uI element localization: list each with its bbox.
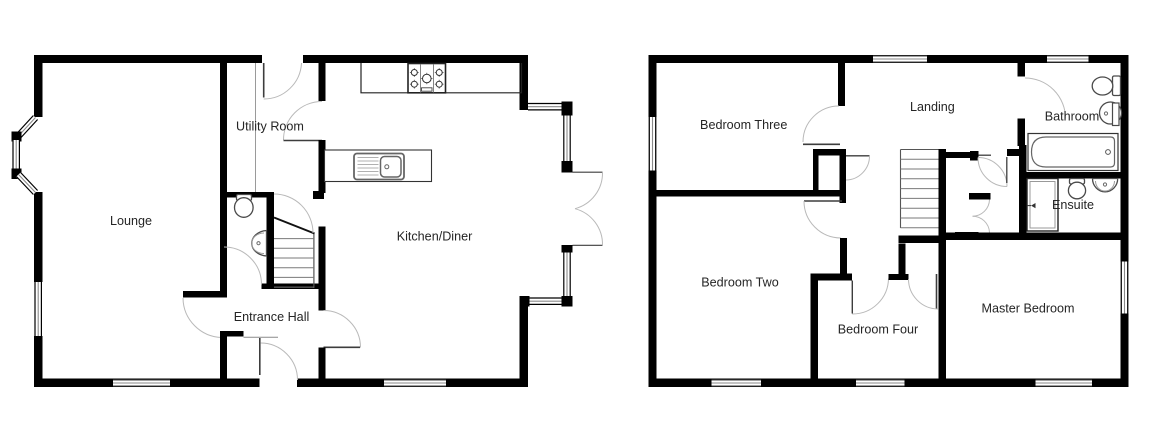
svg-text:Bathroom: Bathroom (1045, 110, 1100, 124)
svg-text:Bedroom Two: Bedroom Two (701, 276, 778, 290)
svg-text:Kitchen/Diner: Kitchen/Diner (397, 230, 473, 244)
svg-text:Landing: Landing (910, 100, 955, 114)
svg-text:Ensuite: Ensuite (1052, 198, 1094, 212)
svg-text:Entrance Hall: Entrance Hall (234, 310, 310, 324)
svg-text:Lounge: Lounge (110, 214, 152, 228)
svg-text:Bedroom Four: Bedroom Four (838, 323, 919, 337)
svg-text:Bedroom Three: Bedroom Three (700, 118, 787, 132)
svg-text:Utility Room: Utility Room (236, 120, 304, 134)
svg-text:Master Bedroom: Master Bedroom (981, 302, 1074, 316)
